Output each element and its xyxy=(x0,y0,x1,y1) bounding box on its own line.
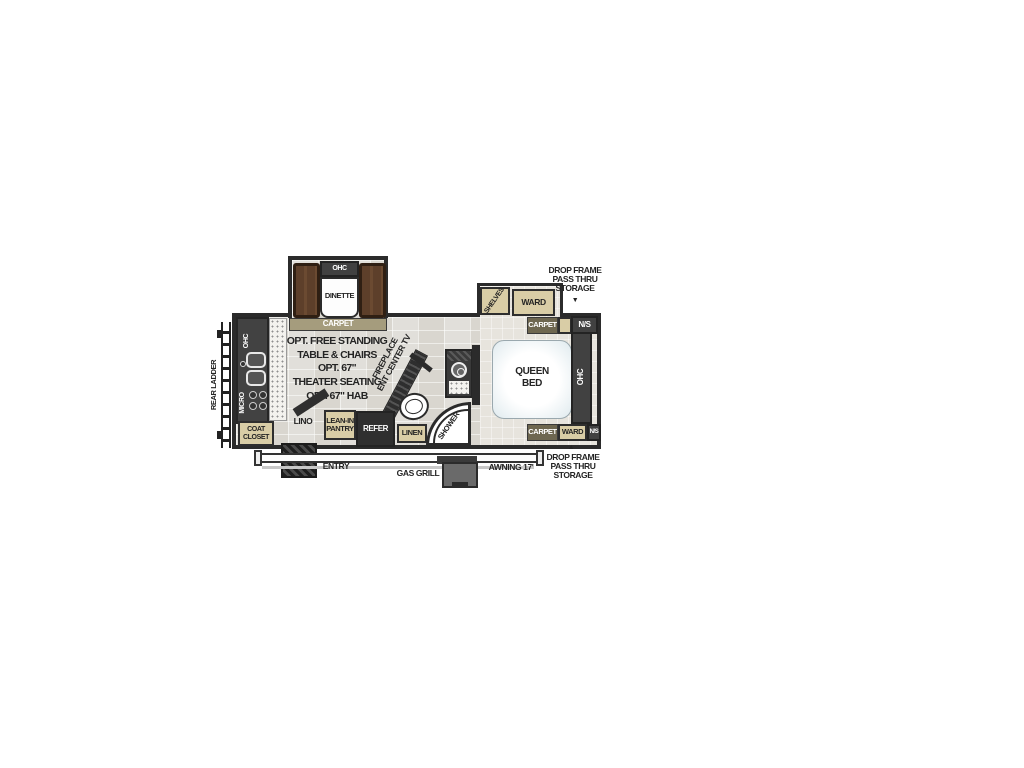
awning-cap-left xyxy=(254,450,262,466)
storage-top-line: STORAGE xyxy=(555,284,594,293)
linen-box: LINEN xyxy=(397,424,427,443)
stove-burner-icon xyxy=(249,391,257,399)
entry-label: ENTRY xyxy=(318,462,354,472)
pantry-label: PANTRY xyxy=(326,425,354,433)
bath-vanity xyxy=(445,349,473,398)
coat-closet: COAT CLOSET xyxy=(238,421,274,446)
dinette-ohc: OHC xyxy=(320,261,359,277)
coat-closet-label: CLOSET xyxy=(243,434,269,442)
stove-burner-icon xyxy=(249,402,257,410)
bed-label-line: BED xyxy=(522,378,542,390)
carpet-bottom-box: CARPET xyxy=(527,424,558,441)
bedroom-ohc-label: OHC xyxy=(576,347,586,407)
bath-sink-icon xyxy=(451,362,467,378)
queen-bed-label: QUEEN BED xyxy=(492,366,572,389)
storage-note-top: DROP FRAME PASS THRU STORAGE xyxy=(540,266,610,294)
bath-sink-drain xyxy=(457,368,465,376)
gas-grill-label: GAS GRILL xyxy=(396,469,440,479)
toilet-bowl xyxy=(403,397,424,416)
ward-bottom-box: WARD xyxy=(558,424,587,441)
carpet-top-box: CARPET xyxy=(527,317,558,334)
nightstand-top-box xyxy=(558,317,572,334)
options-line: OPT. FREE STANDING xyxy=(287,335,387,349)
vanity-counter xyxy=(449,381,469,394)
ns-bottom-box: N/S xyxy=(587,424,601,441)
dinette-bench-right xyxy=(359,263,386,318)
rear-ladder-icon xyxy=(221,322,231,448)
coat-closet-label: COAT xyxy=(247,426,265,434)
lino-label: LINO xyxy=(287,417,319,427)
storage-bottom-line: STORAGE xyxy=(553,471,592,480)
rear-ladder-label: REAR LADDER xyxy=(209,345,219,425)
rear-ladder-foot-top xyxy=(217,330,222,338)
refer-box: REFER xyxy=(356,411,395,447)
dinette-carpet-strip: CARPET xyxy=(289,318,387,331)
bath-bedroom-wall xyxy=(472,345,480,405)
kitchen-sink-icon xyxy=(246,370,266,386)
vanity-hatch xyxy=(447,351,471,361)
arrow-up-icon: ▲ xyxy=(566,444,576,452)
ns-top-box: N/S xyxy=(571,316,598,334)
awning-label: AWNING 17' xyxy=(484,463,538,473)
kitchen-faucet-icon xyxy=(240,361,246,367)
stove-burner-icon xyxy=(259,391,267,399)
dinette-label: DINETTE xyxy=(320,291,359,301)
stove-burner-icon xyxy=(259,402,267,410)
options-line: OPT. 67" xyxy=(318,362,356,376)
micro-label: MICRO xyxy=(238,383,248,423)
kitchen-sink-icon xyxy=(246,352,266,368)
bed-label-line: QUEEN xyxy=(515,366,549,378)
storage-note-bottom: DROP FRAME PASS THRU STORAGE xyxy=(538,453,608,481)
rear-ladder-foot-bottom xyxy=(217,431,222,439)
options-line: TABLE & CHAIRS xyxy=(297,349,377,363)
dinette-bench-left xyxy=(293,263,320,318)
arrow-down-icon: ▼ xyxy=(570,297,580,305)
lean-in-pantry: LEAN-IN PANTRY xyxy=(324,410,356,440)
gas-grill-handle xyxy=(452,482,468,486)
floorplan-canvas: REAR LADDER OHC MICRO COAT CLOSET LINO O… xyxy=(0,0,1024,768)
